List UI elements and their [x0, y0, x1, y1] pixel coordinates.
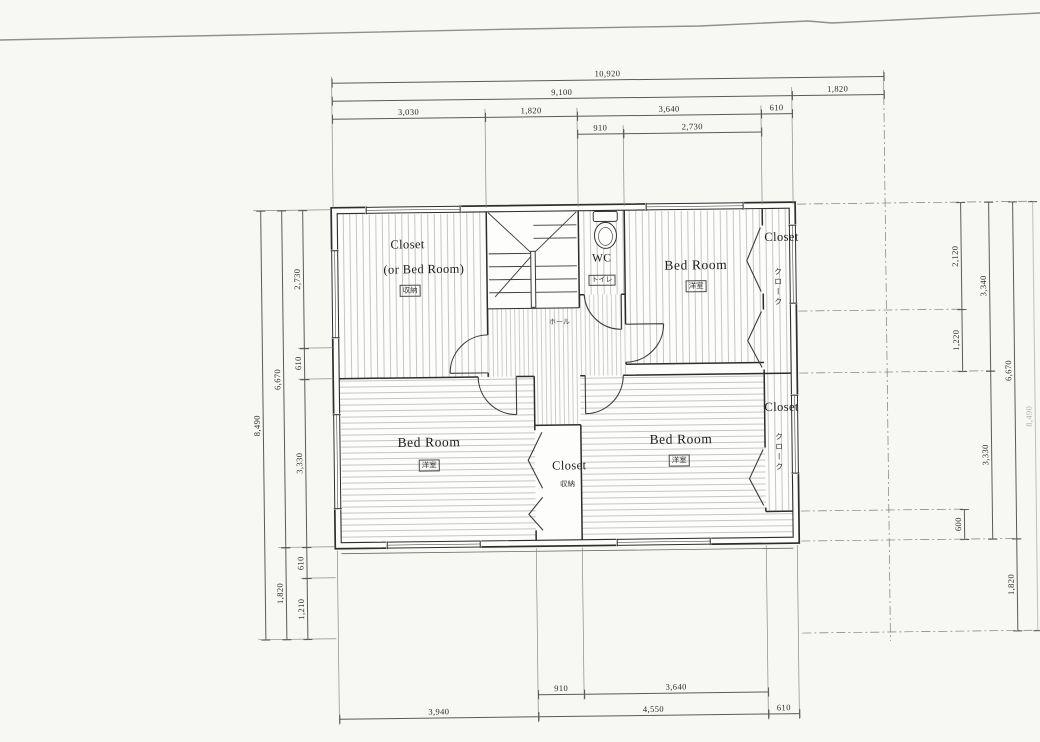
dimension-tick: [302, 547, 311, 548]
dimension-tick: [300, 348, 309, 349]
dimension-tick: [332, 97, 333, 106]
dimension-tick: [332, 115, 333, 124]
dimension-tick: [623, 129, 624, 138]
dimension-tick: [261, 640, 270, 641]
dimension-tick: [256, 211, 265, 212]
dimension-label: 3,340: [978, 276, 988, 297]
dimension-tick: [960, 539, 969, 540]
room-label-bedroom-se: Bed Room: [649, 431, 712, 448]
dimension-tick: [303, 639, 312, 640]
dimension-tick: [332, 79, 333, 88]
dimension-tick: [584, 690, 585, 699]
dimension-label: 3,940: [428, 706, 449, 716]
room-label-closet-ne: Closet: [764, 230, 799, 245]
dimension-label: 2,730: [292, 269, 302, 290]
dimension-label: 610: [295, 556, 305, 570]
dimension-label: 9,100: [551, 86, 572, 96]
dimension-label: 610: [769, 102, 783, 112]
dimension-label: 1,220: [951, 330, 961, 351]
dimension-tick: [339, 715, 340, 724]
dimension-tick: [986, 371, 995, 372]
room-label-closet-e: Closet: [764, 400, 799, 415]
dimension-tick: [1033, 630, 1040, 631]
dimension-label: 4,550: [643, 703, 664, 713]
window-bottom-sw: [386, 540, 481, 550]
dimension-tick: [984, 202, 993, 203]
dimension-label: 610: [293, 357, 303, 371]
dimension-label: 10,920: [595, 68, 621, 78]
dimension-tick: [768, 687, 769, 696]
room-label-bedroom-se-jp: 洋室: [669, 454, 690, 466]
dimension-label: 1,820: [1006, 574, 1016, 595]
dimension-tick: [957, 309, 966, 310]
dimension-label: 3,640: [666, 681, 687, 691]
room-label-wc-jp: トイレ: [588, 275, 615, 287]
dimension-tick: [577, 112, 578, 121]
room-label-hall-jp: ホール: [549, 317, 570, 327]
window-left-nw: [330, 250, 340, 339]
dimension-label: 2,730: [682, 121, 703, 131]
room-label-closet-ne-jp: クローク: [772, 267, 783, 307]
dimension-tick: [1028, 201, 1037, 202]
dimension-label: 6,670: [272, 368, 282, 389]
dimension-tick: [1012, 539, 1021, 540]
dimension-tick: [958, 371, 967, 372]
room-label-closet-nw-jp: 収納: [400, 285, 421, 297]
dimension-tick: [538, 690, 539, 699]
dimension-tick: [768, 709, 769, 718]
room-label-closet-s: Closet: [552, 458, 587, 473]
dimension-label: 600: [953, 517, 963, 531]
room-label-bedroom-ne: Bed Room: [664, 257, 727, 274]
dimension-label: 910: [593, 122, 607, 132]
dimension-label: 2,120: [950, 245, 960, 266]
dimension-tick: [485, 113, 486, 122]
dimension-tick: [577, 130, 578, 139]
dimension-tick: [300, 379, 309, 380]
dimension-tick: [884, 72, 885, 81]
dimension-tick: [282, 639, 291, 640]
dimension-label: 1,820: [827, 83, 848, 93]
dimension-tick: [277, 210, 286, 211]
dimension-label: 8,490: [1024, 405, 1034, 426]
dimension-label: 910: [554, 682, 568, 692]
room-label-bedroom-sw: Bed Room: [397, 434, 460, 451]
dimension-tick: [298, 210, 307, 211]
dimension-label: 1,820: [275, 583, 285, 604]
dimension-label: 1,820: [520, 105, 541, 115]
dimension-tick: [792, 109, 793, 118]
dimension-tick: [761, 128, 762, 137]
window-top-nw: [365, 205, 461, 215]
dimension-tick: [303, 578, 312, 579]
room-label-closet-s-jp: 収納: [560, 478, 575, 489]
dimension-tick: [988, 539, 997, 540]
scanned-sheet: Closet (or Bed Room) 収納 WC トイレ Bed Room …: [0, 0, 1040, 735]
window-bottom-se: [616, 537, 711, 547]
dimension-label: 3,640: [658, 103, 679, 113]
floor-hatching: [331, 202, 799, 549]
dimension-tick: [960, 509, 969, 510]
dimension-tick: [538, 712, 539, 721]
room-label-closet-nw-alt: (or Bed Room): [383, 262, 464, 278]
window-top-ne: [645, 202, 744, 212]
floor-plan: Closet (or Bed Room) 収納 WC トイレ Bed Room …: [0, 0, 1040, 742]
dimension-label: 610: [777, 702, 791, 712]
dimension-tick: [761, 110, 762, 119]
room-label-closet-nw: Closet: [390, 237, 425, 252]
dimension-tick: [281, 547, 290, 548]
window-left-sw: [332, 414, 342, 510]
dimension-tick: [1013, 631, 1022, 632]
toilet-icon: [593, 211, 617, 248]
room-label-closet-e-jp: クローク: [773, 432, 784, 472]
dimension-label: 6,670: [1003, 359, 1013, 380]
dimension-label: 1,210: [296, 598, 306, 619]
dimension-tick: [956, 202, 965, 203]
dimension-tick: [884, 90, 885, 99]
dimension-label: 3,030: [398, 106, 419, 116]
room-label-bedroom-sw-jp: 洋室: [419, 459, 440, 471]
dimension-tick: [1008, 201, 1017, 202]
dimension-tick: [792, 91, 793, 100]
dimension-label: 3,330: [980, 444, 990, 465]
dimension-label: 3,330: [294, 453, 304, 474]
room-label-wc: WC: [592, 252, 611, 264]
room-label-bedroom-ne-jp: 洋室: [686, 280, 707, 292]
dimension-tick: [799, 709, 800, 718]
dimension-label: 8,490: [252, 415, 262, 436]
